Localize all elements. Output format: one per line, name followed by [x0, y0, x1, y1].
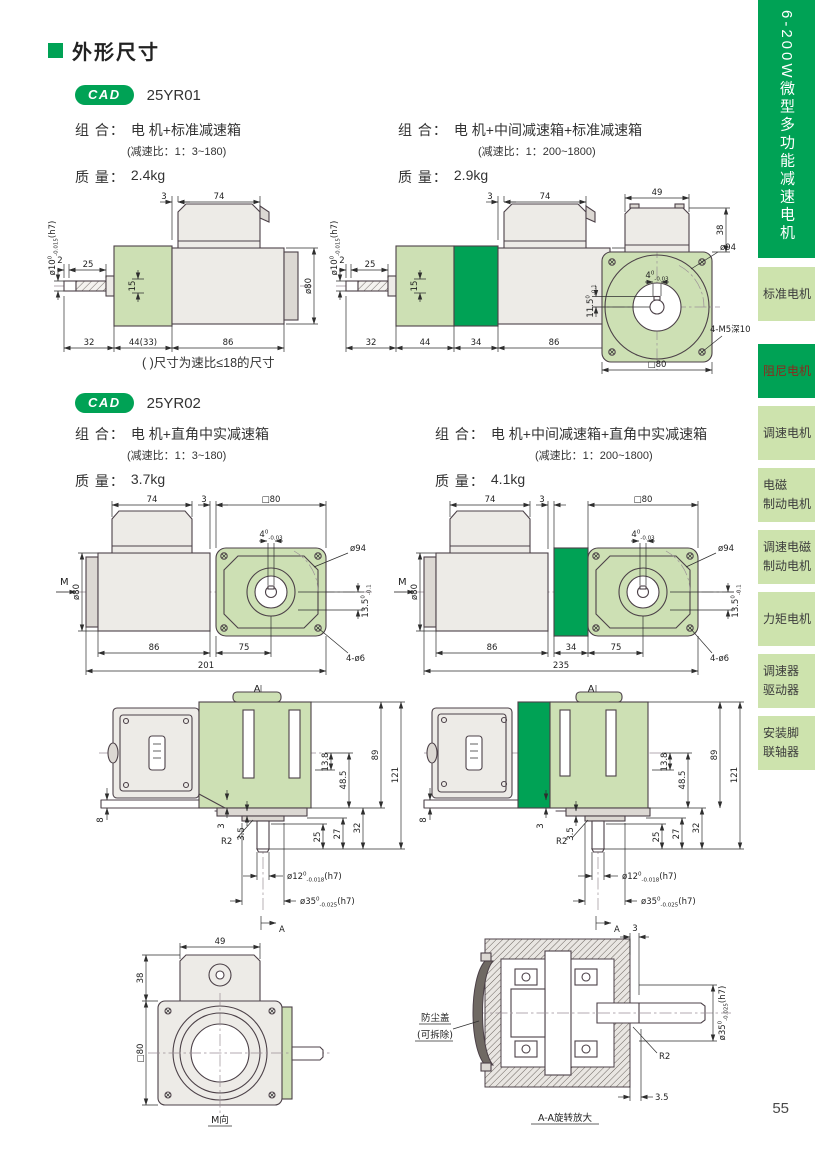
dim: 15 [410, 281, 420, 292]
page-title: 外形尺寸 [72, 36, 160, 65]
dim-fillet: R2 [659, 1052, 670, 1062]
dim: 44 [420, 338, 431, 348]
dim: 8 [419, 817, 429, 822]
sidebar-item-em-brake-motor[interactable]: 电磁 制动电机 [758, 468, 815, 522]
dim: 25 [365, 260, 376, 270]
dim-mounting-holes: 4-ø6 [346, 654, 365, 664]
dim: 32 [84, 338, 95, 348]
dim: 3 [539, 495, 544, 505]
mass-label: 质 量： [75, 167, 125, 187]
dim: 201 [198, 661, 214, 671]
dim: 25 [83, 260, 94, 270]
dim: 2 [57, 256, 62, 266]
sidebar-item-speed-motor[interactable]: 调速电机 [758, 406, 815, 460]
dim: 32 [353, 823, 363, 834]
combo-label: 组 合： [75, 424, 125, 444]
dim: 86 [549, 338, 560, 348]
dust-cover-note: (可拆除) [417, 1029, 453, 1041]
dim-fillet: R2 [556, 837, 567, 847]
dim: 86 [487, 643, 498, 653]
drawing-m-view: 49 38 □80 M向 [118, 935, 333, 1130]
drawing-25yr02-intermediate-section-side-view: A 8 3 3.5 R2 25 27 32 13.8 48.5 89 121 ø… [420, 680, 755, 935]
dim-fillet: R2 [221, 837, 232, 847]
dim: 3 [487, 192, 492, 202]
sidebar-item-controller-driver[interactable]: 调速器 驱动器 [758, 654, 815, 708]
dim: 74 [214, 192, 225, 202]
dim: 27 [672, 829, 682, 840]
mass-label: 质 量： [75, 471, 125, 491]
dim-key-depth-tolerance: 13.50-0.1 [731, 584, 743, 617]
sidebar-nav: 标准电机 阻尼电机 调速电机 电磁 制动电机 调速电磁 制动电机 力矩电机 调速… [758, 267, 815, 770]
dim-shaft-tolerance: ø100-0.015(h7) [330, 221, 342, 276]
view-direction-label: M [60, 577, 69, 588]
dim: ø80 [72, 584, 82, 600]
dim: 15 [128, 281, 138, 292]
dim: 3.5 [566, 827, 576, 841]
dim: ø94 [718, 544, 734, 554]
combo-label: 组 合： [75, 120, 125, 140]
spec-25yr02-left: 组 合： 电 机+直角中实减速箱 (减速比：1：3~180) 质 量： 3.7k… [75, 424, 269, 491]
combo-label: 组 合： [398, 120, 448, 140]
dim-key-depth-tolerance: 11.50-0.1 [586, 284, 598, 317]
dim: 49 [652, 188, 663, 198]
section-label: A [279, 925, 285, 935]
dim: 34 [566, 643, 577, 653]
dim: 89 [371, 750, 381, 761]
dim: 48.5 [678, 771, 688, 790]
dim: 75 [239, 643, 250, 653]
dim-key-depth-tolerance: 13.50-0.1 [361, 584, 373, 617]
combo-label: 组 合： [435, 424, 485, 444]
spec-25yr01-left: 组 合： 电 机+标准减速箱 (减速比：1：3~180) 质 量： 2.4kg [75, 120, 241, 187]
dim: 74 [485, 495, 496, 505]
dim: 44(33) [129, 338, 157, 348]
dim: □80 [136, 1044, 146, 1063]
model-number: 25YR02 [147, 395, 201, 412]
dim: 75 [611, 643, 622, 653]
cad-badge[interactable]: CAD [75, 393, 134, 413]
drawing-25yr02-intermediate-top-view: M ø80 74 3 □80 40-0.03 ø94 13.50-0.1 4-ø… [390, 495, 755, 685]
model-number: 25YR01 [147, 87, 201, 104]
drawing-25yr01-front-view: 49 38 40-0.03 11.50-0.1 ø94 4-M5深10 □80 [588, 188, 756, 378]
dim: 48.5 [339, 771, 349, 790]
dim-mounting-holes: 4-ø6 [710, 654, 729, 664]
dim: 25 [313, 832, 323, 843]
mass-label: 质 量： [398, 167, 448, 187]
mass-value: 4.1kg [491, 471, 525, 491]
dim: □80 [262, 495, 281, 505]
mass-value: 3.7kg [131, 471, 165, 491]
drawing-aa-section: 防尘盖 (可拆除) 3 R2 3.5 ø350-0.025(h7) A-A旋转放… [415, 925, 735, 1130]
dim: 74 [147, 495, 158, 505]
drawing-25yr02-top-view: M ø80 74 3 □80 40-0.03 ø94 13.50-0.1 4-ø… [52, 495, 397, 685]
cad-badge[interactable]: CAD [75, 85, 134, 105]
sidebar-item-torque-motor[interactable]: 力矩电机 [758, 592, 815, 646]
dim-key-tolerance: 40-0.03 [631, 530, 655, 542]
dim: ø94 [350, 544, 366, 554]
dim-key-tolerance: 40-0.03 [259, 530, 283, 542]
catalog-page: 6-200W微型多功能减速电机 标准电机 阻尼电机 调速电机 电磁 制动电机 调… [0, 0, 815, 1153]
dim: 3 [217, 823, 227, 828]
dim: 38 [716, 225, 726, 236]
dim: 27 [333, 829, 343, 840]
page-header: 外形尺寸 [48, 36, 160, 65]
dim: □80 [648, 360, 667, 370]
dim: 86 [149, 643, 160, 653]
sidebar-item-standard-motor[interactable]: 标准电机 [758, 267, 815, 321]
dim: 3 [536, 823, 546, 828]
ratio-dimension-note: ( )尺寸为速比≤18的尺寸 [142, 352, 275, 371]
dim: 2 [339, 256, 344, 266]
mass-label: 质 量： [435, 471, 485, 491]
dim: 25 [652, 832, 662, 843]
dim-mounting-screws: 4-M5深10 [710, 325, 751, 335]
drawing-25yr02-section-side-view: A 8 3 3.5 R2 25 27 32 13.8 48.5 89 121 ø… [95, 680, 415, 935]
dim-shaft-tolerance: ø120-0.018(h7) [287, 872, 342, 884]
dim: 13.8 [321, 753, 331, 772]
dim: 121 [391, 767, 401, 783]
model-header-25yr01: CAD 25YR01 [75, 85, 201, 105]
dim-boss-tolerance: ø350-0.025(h7) [641, 897, 696, 909]
dim: 32 [692, 823, 702, 834]
dim: □80 [634, 495, 653, 505]
dim: ø80 [304, 278, 314, 294]
dim-shaft-tolerance: ø120-0.018(h7) [622, 872, 677, 884]
dim: 8 [96, 817, 106, 822]
page-number: 55 [772, 1100, 789, 1117]
sidebar: 6-200W微型多功能减速电机 标准电机 阻尼电机 调速电机 电磁 制动电机 调… [758, 0, 815, 1153]
dim: 13.8 [660, 753, 670, 772]
dim: 3.5 [655, 1093, 669, 1103]
dim: 235 [553, 661, 569, 671]
series-title: 6-200W微型多功能减速电机 [779, 10, 794, 258]
view-label: M向 [211, 1114, 229, 1126]
combo-value: 电 机+标准减速箱 [131, 120, 241, 140]
mass-value: 2.9kg [454, 167, 488, 187]
series-banner[interactable]: 6-200W微型多功能减速电机 [758, 0, 815, 258]
view-direction-label: M [398, 577, 407, 588]
spec-25yr01-right: 组 合： 电 机+中间减速箱+标准减速箱 (减速比：1：200~1800) 质 … [398, 120, 642, 187]
ratio-note: (减速比：1：3~180) [127, 447, 269, 463]
dim: 49 [215, 937, 226, 947]
ratio-note: (减速比：1：200~1800) [535, 447, 707, 463]
dim: 121 [730, 767, 740, 783]
sidebar-item-speed-em-brake-motor[interactable]: 调速电磁 制动电机 [758, 530, 815, 584]
ratio-note: (减速比：1：3~180) [127, 143, 241, 159]
ratio-note: (减速比：1：200~1800) [478, 143, 642, 159]
dim: 34 [471, 338, 482, 348]
dim: 89 [710, 750, 720, 761]
dim: 86 [223, 338, 234, 348]
combo-value: 电 机+中间减速箱+直角中实减速箱 [491, 424, 707, 444]
dust-cover-label: 防尘盖 [421, 1012, 450, 1024]
combo-value: 电 机+中间减速箱+标准减速箱 [454, 120, 642, 140]
mass-value: 2.4kg [131, 167, 165, 187]
model-header-25yr02: CAD 25YR02 [75, 393, 201, 413]
dim: 38 [136, 973, 146, 984]
sidebar-item-foot-coupling[interactable]: 安装脚 联轴器 [758, 716, 815, 770]
combo-value: 电 机+直角中实减速箱 [131, 424, 269, 444]
dim: 3 [632, 924, 637, 934]
dim-boss-tolerance: ø350-0.025(h7) [300, 897, 355, 909]
spec-25yr02-right: 组 合： 电 机+中间减速箱+直角中实减速箱 (减速比：1：200~1800) … [435, 424, 707, 491]
dim: 3 [201, 495, 206, 505]
title-bullet-icon [48, 43, 63, 58]
dim: 3 [161, 192, 166, 202]
view-label: A-A旋转放大 [538, 1112, 593, 1124]
sidebar-item-damping-motor[interactable]: 阻尼电机 [758, 344, 815, 398]
dim-shaft-tolerance: ø100-0.015(h7) [48, 221, 60, 276]
dim: ø80 [410, 584, 420, 600]
dim: ø94 [720, 243, 736, 253]
dim: 32 [366, 338, 377, 348]
dim-boss-tolerance: ø350-0.025(h7) [718, 986, 730, 1041]
dim: 74 [540, 192, 551, 202]
drawing-25yr01-standard-side-view: 3 74 2 25 ø100-0.015(h7) 15 ø80 32 44(33… [48, 190, 353, 375]
